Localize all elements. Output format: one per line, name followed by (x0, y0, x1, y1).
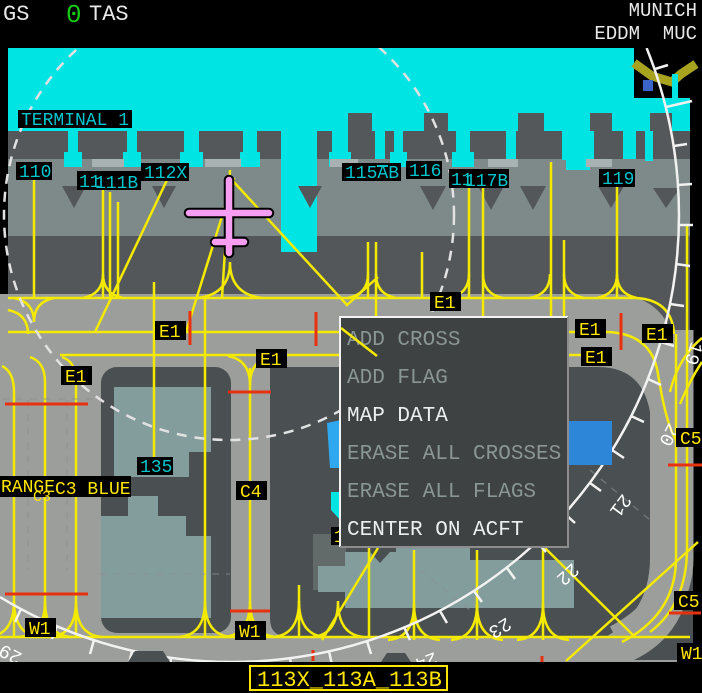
svg-text:C3: C3 (33, 489, 51, 506)
svg-text:111B: 111B (95, 174, 138, 194)
svg-text:C5: C5 (680, 430, 702, 450)
svg-text:116: 116 (409, 162, 441, 182)
svg-text:115AB: 115AB (345, 164, 399, 184)
svg-text:C4: C4 (240, 483, 262, 503)
svg-text:E1: E1 (434, 294, 456, 314)
svg-text:TAS: TAS (89, 2, 129, 27)
svg-text:113X_113A_113B: 113X_113A_113B (257, 668, 442, 693)
svg-text:E1: E1 (579, 321, 601, 341)
svg-text:117B: 117B (465, 172, 508, 192)
svg-text:EDDM MUC: EDDM MUC (594, 23, 697, 45)
svg-text:E1: E1 (260, 351, 282, 371)
svg-text:MAP DATA: MAP DATA (347, 405, 448, 428)
svg-text:E1: E1 (646, 326, 668, 346)
svg-text:E1: E1 (585, 349, 607, 369)
svg-text:C3 BLUE: C3 BLUE (55, 480, 131, 500)
svg-text:119: 119 (602, 170, 634, 190)
svg-text:W1: W1 (29, 620, 51, 640)
svg-text:CENTER ON ACFT: CENTER ON ACFT (347, 519, 523, 542)
svg-text:C5: C5 (678, 593, 700, 613)
svg-text:E1: E1 (65, 368, 87, 388)
svg-text:MUNICH: MUNICH (629, 0, 697, 22)
svg-text:110: 110 (19, 163, 51, 183)
svg-text:ERASE ALL FLAGS: ERASE ALL FLAGS (347, 481, 536, 504)
svg-text:0: 0 (66, 0, 82, 30)
svg-text:W1: W1 (239, 623, 261, 643)
svg-text:ADD FLAG: ADD FLAG (347, 367, 448, 390)
svg-text:ERASE ALL CROSSES: ERASE ALL CROSSES (347, 443, 561, 466)
svg-text:112X: 112X (144, 164, 187, 184)
svg-text:135: 135 (140, 458, 172, 478)
svg-text:TERMINAL 1: TERMINAL 1 (21, 111, 129, 131)
svg-text:ADD CROSS: ADD CROSS (347, 329, 460, 352)
svg-text:E1: E1 (159, 323, 181, 343)
svg-text:GS: GS (3, 2, 29, 27)
